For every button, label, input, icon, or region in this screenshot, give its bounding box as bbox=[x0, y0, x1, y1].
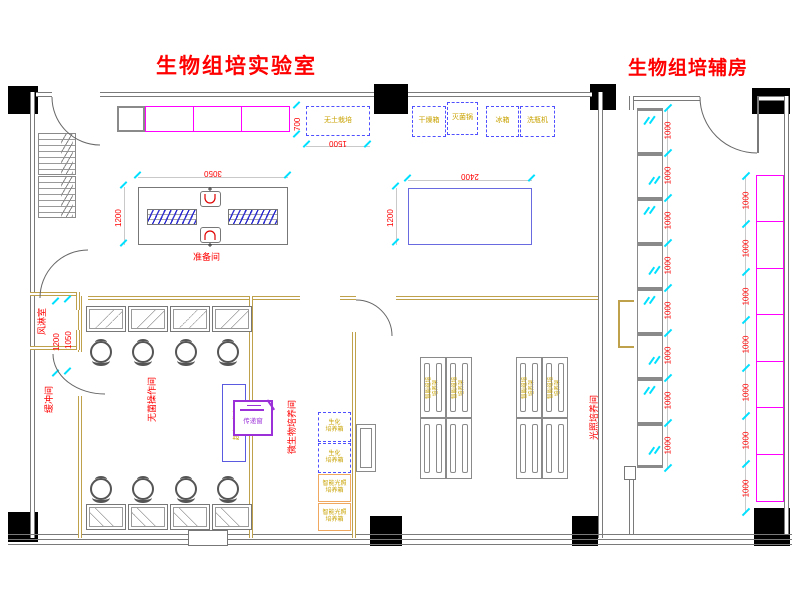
dim-tick bbox=[64, 367, 72, 375]
incubator-light: 智能光照 培养箱 bbox=[318, 474, 351, 502]
lab-title: 生物组培实验室 bbox=[156, 50, 317, 80]
room-label-microbe: 微生物培养间 bbox=[285, 400, 298, 454]
pass-window-shelf bbox=[247, 405, 261, 406]
air-shower-wall bbox=[76, 330, 80, 350]
dim-segment: 1000 bbox=[660, 288, 676, 333]
equip-bottle-washer: 洗瓶机 bbox=[520, 106, 555, 137]
partition-wall bbox=[340, 296, 356, 300]
wall bbox=[36, 92, 52, 97]
cabinet-cell bbox=[193, 106, 242, 132]
dim-1500: 1500 bbox=[318, 139, 358, 148]
room-label-prep: 准备间 bbox=[193, 250, 220, 263]
rack-label: 智能组培 培养架 bbox=[452, 376, 466, 398]
culture-rack-group: 智能组培 培养架 智能组培 培养架 bbox=[516, 357, 568, 479]
stool bbox=[175, 341, 197, 363]
rack-cell bbox=[446, 418, 472, 479]
wall bbox=[784, 96, 789, 534]
dim-tick bbox=[120, 239, 128, 247]
dim-1000: 1000 bbox=[664, 167, 673, 185]
shelf-rack bbox=[38, 176, 76, 218]
aux-bench bbox=[756, 175, 784, 223]
wall bbox=[8, 539, 792, 540]
pass-window-label: 传递窗 bbox=[235, 415, 271, 425]
wall bbox=[630, 96, 700, 101]
wall-cabinet-box bbox=[117, 106, 145, 132]
dim-segment: 1000 bbox=[738, 368, 754, 416]
stool bbox=[217, 341, 239, 363]
dim-tick bbox=[52, 297, 60, 305]
partition-wall bbox=[78, 396, 82, 538]
stool bbox=[132, 341, 154, 363]
clean-bench-row-top bbox=[86, 306, 252, 332]
clean-bench-row-bottom bbox=[86, 504, 252, 530]
dim-segment: 1000 bbox=[660, 153, 676, 198]
column bbox=[374, 84, 408, 114]
cabinet-cell bbox=[145, 106, 194, 132]
dim-line bbox=[396, 188, 397, 245]
dim-1000: 1000 bbox=[664, 437, 673, 455]
rack-cell: 智能组培 培养架 bbox=[542, 357, 568, 418]
aux-bench bbox=[756, 361, 784, 409]
sink bbox=[200, 227, 221, 243]
wall bbox=[100, 92, 374, 97]
stool bbox=[175, 478, 197, 500]
aux-bench bbox=[756, 407, 784, 455]
work-table bbox=[408, 188, 532, 245]
rack-cell: 智能组培 培养架 bbox=[420, 357, 446, 418]
workbench bbox=[212, 504, 252, 530]
dim-segment: 1000 bbox=[738, 176, 754, 224]
rack-cell bbox=[542, 418, 568, 479]
equip-soilless-culture: 无土栽培 bbox=[306, 106, 370, 136]
stool bbox=[90, 341, 112, 363]
dim-segment: 1000 bbox=[738, 464, 754, 512]
door-arc-light-room bbox=[356, 300, 392, 336]
dim-1000: 1000 bbox=[742, 287, 751, 305]
sink bbox=[200, 191, 221, 207]
rack-cell: 智能组培 培养架 bbox=[516, 357, 542, 418]
workbench bbox=[128, 504, 168, 530]
workbench bbox=[86, 504, 126, 530]
wall bbox=[598, 92, 603, 538]
dim-1200-prep: 1200 bbox=[114, 209, 123, 227]
dim-1000: 1000 bbox=[742, 335, 751, 353]
incubator-light: 智能光照 培养箱 bbox=[318, 503, 351, 531]
aux-bench bbox=[756, 454, 784, 502]
dim-chain-benches: 1000100010001000100010001000 bbox=[738, 176, 754, 512]
dim-segment: 1000 bbox=[738, 272, 754, 320]
dim-3050: 3050 bbox=[190, 169, 236, 178]
cabinet bbox=[356, 424, 376, 472]
dim-1000: 1000 bbox=[742, 431, 751, 449]
dim-segment: 1000 bbox=[660, 378, 676, 423]
aux-title: 生物组培辅房 bbox=[628, 53, 748, 80]
dim-1000: 1000 bbox=[664, 122, 673, 140]
rack-label: 智能组培 培养架 bbox=[548, 376, 562, 398]
room-label-sterile-op: 无菌操作间 bbox=[145, 377, 158, 422]
cabinet-cell bbox=[241, 106, 290, 132]
dim-segment: 1000 bbox=[660, 333, 676, 378]
air-shower-wall bbox=[30, 292, 80, 296]
pass-window: 传递窗 bbox=[233, 400, 273, 436]
door-arc-aux-entry bbox=[700, 97, 757, 153]
dim-1200-table: 1200 bbox=[386, 209, 395, 227]
dim-segment: 1000 bbox=[660, 423, 676, 468]
rack-label: 智能组培 培养架 bbox=[426, 376, 440, 398]
dim-segment: 1000 bbox=[738, 320, 754, 368]
dim-1000: 1000 bbox=[664, 347, 673, 365]
dim-segment: 1000 bbox=[660, 108, 676, 153]
column bbox=[370, 516, 402, 546]
aux-bench bbox=[756, 268, 784, 316]
dim-1000: 1000 bbox=[664, 392, 673, 410]
dim-line bbox=[124, 187, 125, 245]
stool bbox=[90, 478, 112, 500]
aux-bench bbox=[756, 221, 784, 269]
dim-1000: 1000 bbox=[664, 212, 673, 230]
room-label-buffer: 缓冲间 bbox=[42, 386, 55, 413]
incubator-biochemical: 生化 培养箱 bbox=[318, 412, 351, 442]
equip-drying-oven: 干燥箱 bbox=[412, 106, 446, 137]
stool bbox=[217, 478, 239, 500]
dim-2400: 2400 bbox=[448, 172, 492, 181]
pass-window-swing bbox=[267, 399, 275, 410]
room-label-air-shower: 风淋室 bbox=[35, 308, 48, 335]
aux-bench-column bbox=[756, 176, 784, 502]
pass-window-shelf bbox=[240, 409, 264, 411]
dim-tick bbox=[293, 130, 301, 138]
magenta-cabinet-row bbox=[146, 106, 290, 132]
dim-1000: 1000 bbox=[742, 383, 751, 401]
incubator-biochemical: 生化 培养箱 bbox=[318, 443, 351, 473]
equip-sterilizer: 灭菌锅 bbox=[447, 102, 478, 135]
equip-fridge: 冰箱 bbox=[486, 106, 519, 137]
partition-wall bbox=[88, 296, 300, 300]
wall bbox=[629, 96, 634, 110]
door-arc-prep-corridor bbox=[40, 250, 88, 298]
air-shower-wall bbox=[76, 292, 80, 310]
dim-1000: 1000 bbox=[664, 257, 673, 275]
door-leaf bbox=[757, 96, 759, 153]
rack-cell bbox=[420, 418, 446, 479]
dim-air-shower-1050: 1050 bbox=[64, 331, 73, 349]
wall bbox=[8, 544, 792, 545]
dim-segment: 1000 bbox=[660, 198, 676, 243]
wall bbox=[408, 92, 592, 97]
workbench bbox=[170, 504, 210, 530]
dim-chain-windows: 10001000100010001000100010001000 bbox=[660, 108, 676, 468]
stool bbox=[132, 478, 154, 500]
dim-tick bbox=[64, 295, 72, 303]
dim-1000: 1000 bbox=[742, 191, 751, 209]
dim-tick bbox=[293, 101, 301, 109]
rack-label: 智能组培 培养架 bbox=[522, 376, 536, 398]
column bbox=[590, 84, 616, 110]
floor-plan: 生物组培实验室 生物组培辅房 风淋室 1200 1050 缓冲间 bbox=[0, 0, 800, 600]
wall-post bbox=[624, 466, 636, 480]
dim-1000: 1000 bbox=[664, 302, 673, 320]
dim-tick bbox=[52, 369, 60, 377]
shelf-rack bbox=[38, 133, 76, 175]
aux-side-door-frame bbox=[618, 300, 634, 348]
dim-air-shower-1200: 1200 bbox=[52, 333, 61, 351]
culture-rack-group: 智能组培 培养架 智能组培 培养架 bbox=[420, 357, 472, 479]
column bbox=[572, 516, 598, 546]
partition-wall bbox=[396, 296, 598, 300]
bottom-window bbox=[188, 530, 228, 546]
workbench bbox=[170, 306, 210, 332]
aux-bench bbox=[756, 314, 784, 362]
workbench bbox=[86, 306, 126, 332]
rack-cell: 智能组培 培养架 bbox=[446, 357, 472, 418]
workbench bbox=[212, 306, 252, 332]
prep-bench-left bbox=[147, 209, 197, 225]
wall bbox=[8, 534, 792, 535]
dim-segment: 1000 bbox=[738, 416, 754, 464]
dim-1000: 1000 bbox=[742, 239, 751, 257]
dim-segment: 1000 bbox=[660, 243, 676, 288]
room-label-light: 光照培养间 bbox=[587, 395, 600, 440]
prep-bench-right bbox=[228, 209, 278, 225]
dim-1000: 1000 bbox=[742, 479, 751, 497]
dim-700: 700 bbox=[293, 118, 302, 131]
dim-segment: 1000 bbox=[738, 224, 754, 272]
workbench bbox=[128, 306, 168, 332]
rack-cell bbox=[516, 418, 542, 479]
wall bbox=[758, 96, 786, 101]
